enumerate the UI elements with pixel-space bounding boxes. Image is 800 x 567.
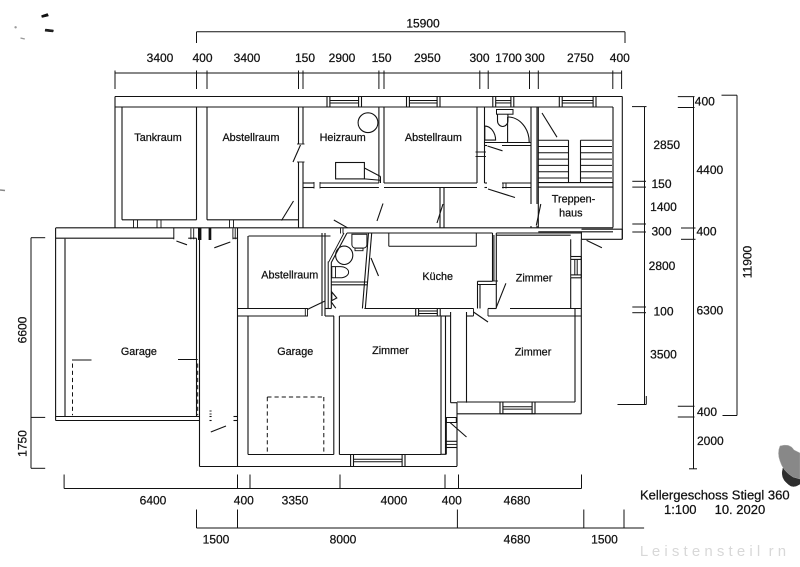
svg-text:Kellergeschoss Stiegl 360: Kellergeschoss Stiegl 360 (640, 488, 790, 503)
svg-text:150: 150 (295, 51, 315, 65)
svg-text:4400: 4400 (697, 163, 724, 177)
svg-text:Zimmer: Zimmer (515, 346, 552, 358)
svg-text:1500: 1500 (591, 533, 618, 547)
svg-text:1750: 1750 (16, 430, 30, 457)
svg-text:Tankraum: Tankraum (134, 132, 181, 144)
svg-text:6600: 6600 (16, 316, 30, 343)
svg-text:15900: 15900 (406, 17, 440, 31)
svg-text:3400: 3400 (234, 51, 261, 65)
svg-text:Heizraum: Heizraum (320, 132, 366, 144)
svg-text:400: 400 (697, 405, 717, 419)
svg-text:1400: 1400 (650, 200, 677, 214)
svg-text:2800: 2800 (649, 259, 676, 273)
svg-text:300: 300 (525, 51, 545, 65)
svg-text:Zimmer: Zimmer (372, 345, 409, 357)
svg-text:haus: haus (559, 208, 583, 220)
svg-text:2750: 2750 (567, 51, 594, 65)
svg-text:400: 400 (192, 51, 212, 65)
svg-text:1500: 1500 (203, 533, 230, 547)
svg-text:150: 150 (651, 177, 671, 191)
svg-text:1:100 10. 2020: 1:100 10. 2020 (664, 502, 765, 517)
svg-text:Garage: Garage (121, 346, 157, 358)
svg-text:3350: 3350 (282, 494, 309, 508)
svg-text:400: 400 (697, 224, 717, 238)
svg-text:2950: 2950 (414, 51, 441, 65)
svg-text:6400: 6400 (140, 494, 167, 508)
svg-text:4680: 4680 (504, 533, 531, 547)
svg-text:L e i s t e n s t e i l r n: L e i s t e n s t e i l r n (640, 543, 786, 560)
svg-text:400: 400 (610, 51, 630, 65)
svg-text:Abstellraum: Abstellraum (405, 132, 462, 144)
svg-text:400: 400 (234, 494, 254, 508)
svg-text:2850: 2850 (653, 138, 680, 152)
svg-text:2900: 2900 (329, 51, 356, 65)
svg-text:1700: 1700 (495, 51, 522, 65)
svg-text:Garage: Garage (277, 346, 313, 358)
svg-text:150: 150 (372, 51, 392, 65)
svg-text:400: 400 (442, 494, 462, 508)
svg-text:300: 300 (469, 51, 489, 65)
svg-text:Abstellraum: Abstellraum (222, 132, 279, 144)
svg-text:300: 300 (651, 224, 671, 238)
svg-text:8000: 8000 (330, 533, 357, 547)
svg-text:11900: 11900 (741, 245, 755, 278)
svg-text:2000: 2000 (697, 434, 724, 448)
svg-text:4680: 4680 (504, 494, 531, 508)
svg-text:Abstellraum: Abstellraum (261, 270, 318, 282)
svg-text:400: 400 (695, 95, 715, 109)
svg-text:4000: 4000 (381, 494, 408, 508)
svg-text:Küche: Küche (422, 271, 453, 283)
svg-text:100: 100 (653, 304, 673, 318)
svg-text:3400: 3400 (147, 51, 174, 65)
svg-text:3500: 3500 (650, 348, 677, 362)
svg-text:Treppen-: Treppen- (552, 194, 596, 206)
svg-text:6300: 6300 (697, 304, 724, 318)
svg-text:Zimmer: Zimmer (516, 273, 553, 285)
